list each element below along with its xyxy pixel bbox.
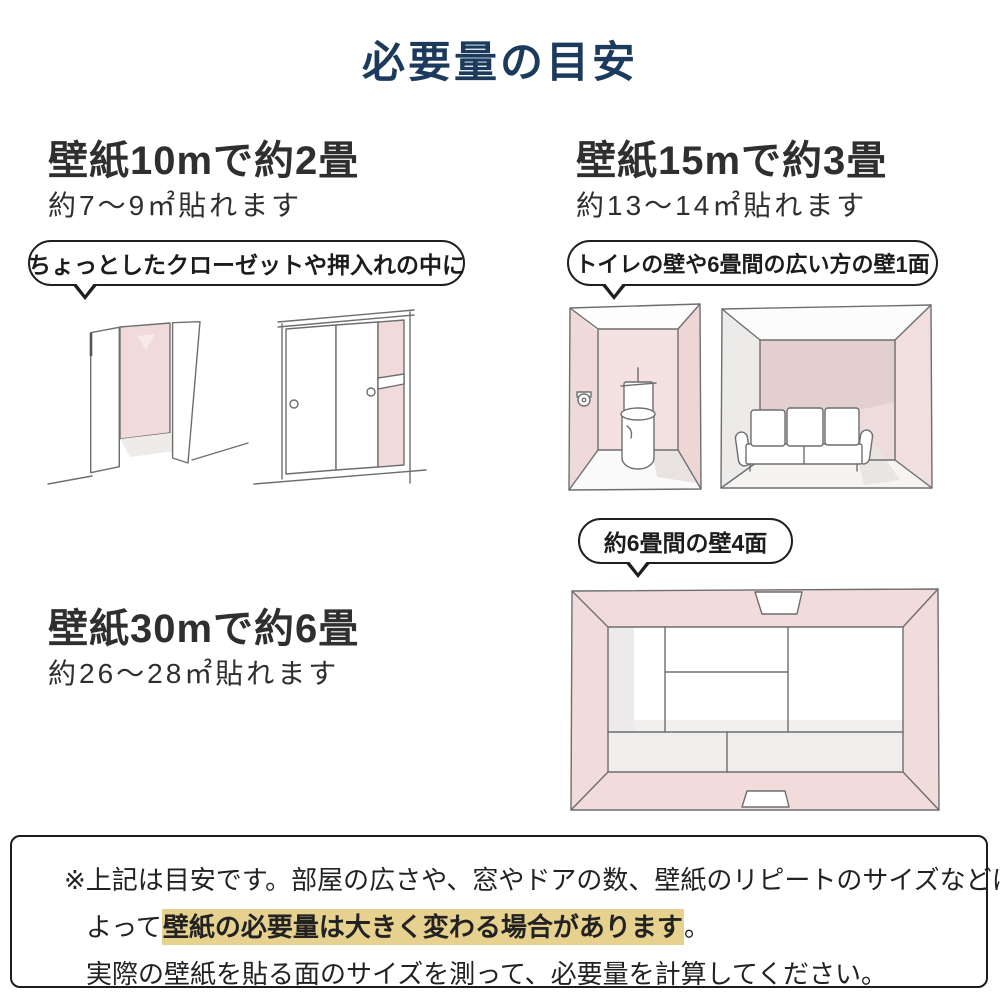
page-title: 必要量の目安 xyxy=(0,28,1000,90)
bubble-15m: トイレの壁や6畳間の広い方の壁1面 xyxy=(567,240,938,286)
bubble-30m: 約6畳間の壁4面 xyxy=(578,518,793,564)
closet-illustrations xyxy=(40,300,500,500)
toilet-room-sketch-icon xyxy=(569,304,701,490)
heading-10m: 壁紙10mで約2畳 xyxy=(48,128,359,186)
note-line-1: ※上記は目安です。部屋の広さや、窓やドアの数、壁紙のリピートのサイズなどに xyxy=(64,857,956,904)
subtext-15m: 約13〜14㎡貼れます xyxy=(576,184,867,224)
note-line-2-suffix: 。 xyxy=(684,912,710,942)
subtext-30m: 約26〜28㎡貼れます xyxy=(48,652,339,692)
note-line-3: 実際の壁紙を貼る面のサイズを測って、必要量を計算してください。 xyxy=(86,951,956,998)
six-mat-room-top-view-sketch-icon xyxy=(571,589,939,810)
open-closet-sketch-icon xyxy=(48,322,248,484)
wallpaper-guide-infographic: 必要量の目安 壁紙10mで約2畳 約7〜9㎡貼れます ちょっとしたクローゼットや… xyxy=(0,0,1000,1000)
bubble-10m: ちょっとしたクローゼットや押入れの中に xyxy=(28,240,465,286)
note-line-2-prefix: よって xyxy=(86,912,162,942)
tatami-room-top-view xyxy=(570,586,942,814)
subtext-10m: 約7〜9㎡貼れます xyxy=(48,184,302,224)
sliding-door-closet-sketch-icon xyxy=(254,310,426,484)
note-line-3-text: 実際の壁紙を貼る面のサイズを測って、必要量を計算してください。 xyxy=(86,959,887,989)
note-line-2: よって壁紙の必要量は大きく変わる場合があります。 xyxy=(86,904,956,951)
heading-30m: 壁紙30mで約6畳 xyxy=(48,596,359,654)
room-illustrations xyxy=(560,298,980,498)
note-highlight: 壁紙の必要量は大きく変わる場合があります xyxy=(162,909,684,945)
note-box: ※上記は目安です。部屋の広さや、窓やドアの数、壁紙のリピートのサイズなどに よっ… xyxy=(10,835,988,988)
sofa-room-sketch-icon xyxy=(721,305,932,488)
note-line-1-text: ※上記は目安です。部屋の広さや、窓やドアの数、壁紙のリピートのサイズなどに xyxy=(64,865,1000,895)
heading-15m: 壁紙15mで約3畳 xyxy=(576,128,887,186)
